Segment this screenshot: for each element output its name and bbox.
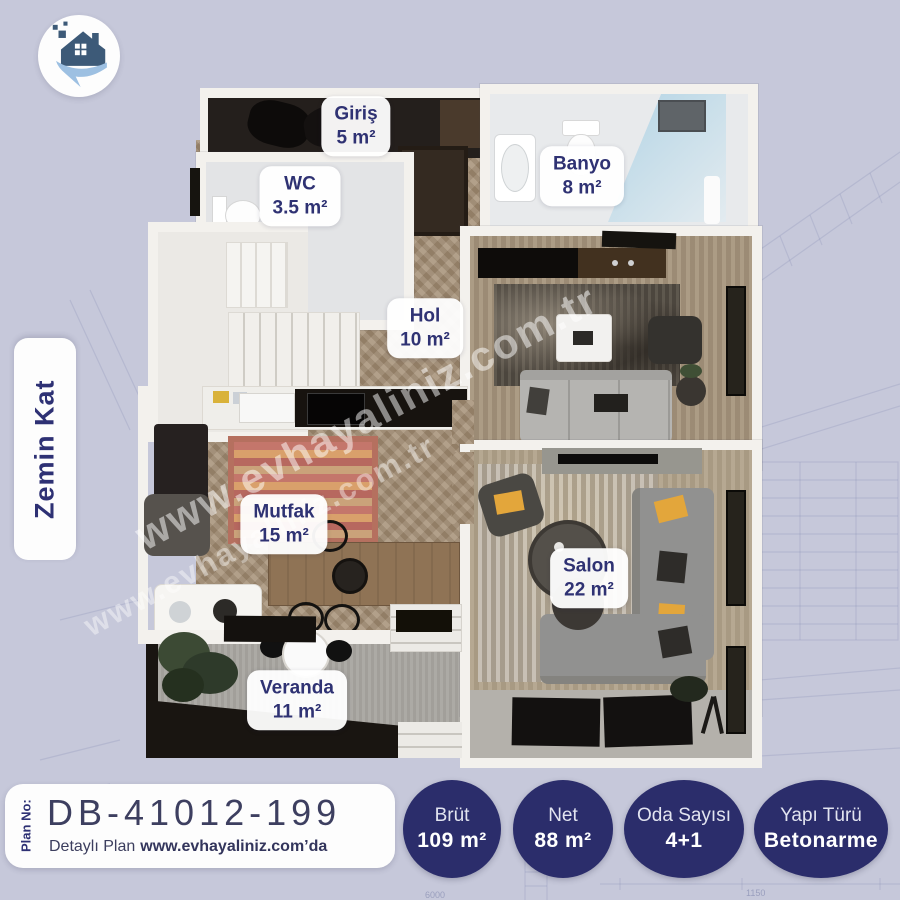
media-console bbox=[478, 248, 666, 278]
side-table bbox=[676, 376, 706, 406]
badge-value: 4+1 bbox=[665, 829, 702, 853]
window bbox=[726, 490, 746, 606]
sofa-tray bbox=[594, 394, 628, 412]
badge-yapi-turu: Yapı Türü Betonarme bbox=[754, 780, 888, 878]
room-name: Mutfak bbox=[253, 500, 314, 524]
pillow-yellow bbox=[654, 495, 688, 524]
doorway bbox=[452, 452, 474, 524]
ceiling-vent bbox=[602, 231, 677, 250]
sink-basin bbox=[501, 144, 529, 192]
cart-item bbox=[169, 601, 191, 623]
room-label-banyo: Banyo 8 m² bbox=[540, 146, 624, 206]
room-label-wc: WC 3.5 m² bbox=[260, 166, 341, 226]
floor-tag-label: Zemin Kat bbox=[30, 379, 61, 519]
room-label-mutfak: Mutfak 15 m² bbox=[240, 494, 327, 554]
plan-no-label-text: Plan No: bbox=[19, 800, 34, 853]
console-knob bbox=[612, 260, 618, 266]
brand-logo bbox=[38, 15, 120, 97]
plan-detail-prefix: Detaylı Plan bbox=[49, 838, 135, 855]
wc-window bbox=[190, 168, 200, 216]
badge-value: Betonarme bbox=[764, 829, 878, 853]
badge-label: Net bbox=[548, 805, 578, 827]
poster: 6000 1150 bbox=[0, 0, 900, 900]
sketch-dim-1150: 1150 bbox=[746, 888, 765, 898]
badge-net: Net 88 m² bbox=[513, 780, 613, 878]
window bbox=[726, 646, 746, 734]
room-name: Salon bbox=[563, 554, 615, 578]
veranda-corner-steps bbox=[398, 722, 462, 758]
room-label-hol: Hol 10 m² bbox=[387, 298, 463, 358]
room-area: 8 m² bbox=[553, 176, 611, 200]
sofa bbox=[520, 370, 672, 442]
terrace-mat bbox=[603, 694, 693, 747]
plan-detail-site: www.evhayaliniz.com’da bbox=[140, 838, 327, 855]
tripod-lamp bbox=[712, 696, 724, 734]
plan-no-label: Plan No: bbox=[13, 788, 39, 864]
stair-cabinet bbox=[226, 242, 288, 308]
badge-brut: Brüt 109 m² bbox=[403, 780, 501, 878]
room-area: 15 m² bbox=[253, 524, 314, 548]
plan-number: DB-41012-199 bbox=[47, 792, 341, 834]
plant bbox=[162, 668, 204, 702]
room-area: 22 m² bbox=[563, 578, 615, 602]
room-label-salon: Salon 22 m² bbox=[550, 548, 628, 608]
plant bbox=[670, 676, 708, 702]
room-area: 10 m² bbox=[400, 328, 450, 352]
salon-terrace bbox=[460, 690, 762, 768]
bathroom-sink bbox=[494, 134, 536, 202]
badge-label: Brüt bbox=[435, 805, 470, 827]
badge-label: Oda Sayısı bbox=[637, 805, 731, 827]
pillow-dark bbox=[657, 551, 688, 584]
counter-deco bbox=[213, 391, 229, 403]
sketch-dim-6000: 6000 bbox=[425, 890, 445, 900]
table-centerpiece bbox=[332, 558, 368, 594]
window bbox=[726, 286, 746, 396]
kitchen-sink bbox=[239, 393, 295, 423]
badge-value: 109 m² bbox=[417, 829, 487, 853]
room-name: Veranda bbox=[260, 676, 334, 700]
evhayaliniz-house-logo-icon bbox=[38, 15, 120, 97]
sofa-pillow bbox=[526, 387, 549, 416]
plan-detail-line: Detaylı Planwww.evhayaliniz.com’da bbox=[49, 838, 327, 856]
badge-value: 88 m² bbox=[534, 829, 591, 853]
tv-console bbox=[542, 448, 702, 474]
plant bbox=[680, 364, 702, 378]
shower-head bbox=[658, 100, 706, 132]
doorway bbox=[452, 400, 474, 444]
room-area: 5 m² bbox=[334, 126, 377, 150]
room-name: Banyo bbox=[553, 152, 611, 176]
pillow-dark bbox=[658, 626, 692, 659]
console-dark bbox=[478, 248, 578, 278]
room-area: 11 m² bbox=[260, 700, 334, 724]
bath-mat bbox=[704, 176, 720, 224]
badge-label: Yapı Türü bbox=[780, 805, 862, 827]
room-label-veranda: Veranda 11 m² bbox=[247, 670, 347, 730]
room-area: 3.5 m² bbox=[273, 196, 328, 220]
closet-shelf bbox=[440, 100, 484, 148]
step-mat bbox=[396, 610, 452, 632]
stair-treads bbox=[228, 312, 360, 396]
bistro-chair bbox=[326, 640, 352, 662]
room-label-giris: Giriş 5 m² bbox=[321, 96, 390, 156]
door-mat bbox=[224, 616, 316, 643]
room-name: WC bbox=[273, 172, 328, 196]
terrace-mat bbox=[512, 697, 601, 747]
armchair bbox=[648, 316, 702, 364]
pillow-yellow bbox=[494, 490, 525, 515]
floor-tag: Zemin Kat bbox=[14, 338, 76, 560]
badge-oda-sayisi: Oda Sayısı 4+1 bbox=[624, 780, 744, 878]
room-name: Hol bbox=[400, 304, 450, 328]
console-knob bbox=[628, 260, 634, 266]
room-name: Giriş bbox=[334, 102, 377, 126]
plan-card: Plan No: DB-41012-199 Detaylı Planwww.ev… bbox=[5, 784, 395, 868]
tv bbox=[558, 454, 658, 464]
